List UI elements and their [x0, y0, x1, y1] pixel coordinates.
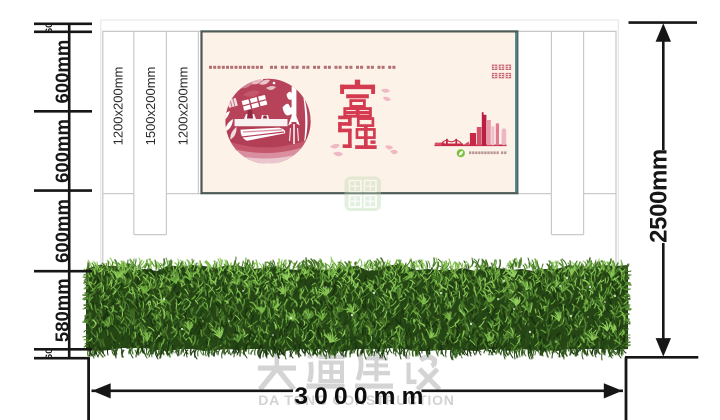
svg-text:600mm: 600mm [51, 40, 72, 104]
svg-text:60: 60 [44, 23, 55, 34]
svg-text:60: 60 [44, 349, 55, 360]
svg-text:600mm: 600mm [51, 119, 72, 183]
svg-text:600mm: 600mm [51, 199, 72, 263]
svg-text:3000mm: 3000mm [294, 383, 429, 410]
svg-text:1200x200mm: 1200x200mm [176, 67, 191, 146]
svg-text:1200x200mm: 1200x200mm [111, 67, 126, 146]
svg-text:2500mm: 2500mm [646, 149, 673, 243]
svg-text:580mm: 580mm [51, 278, 72, 342]
svg-text:1500x200mm: 1500x200mm [143, 67, 158, 146]
